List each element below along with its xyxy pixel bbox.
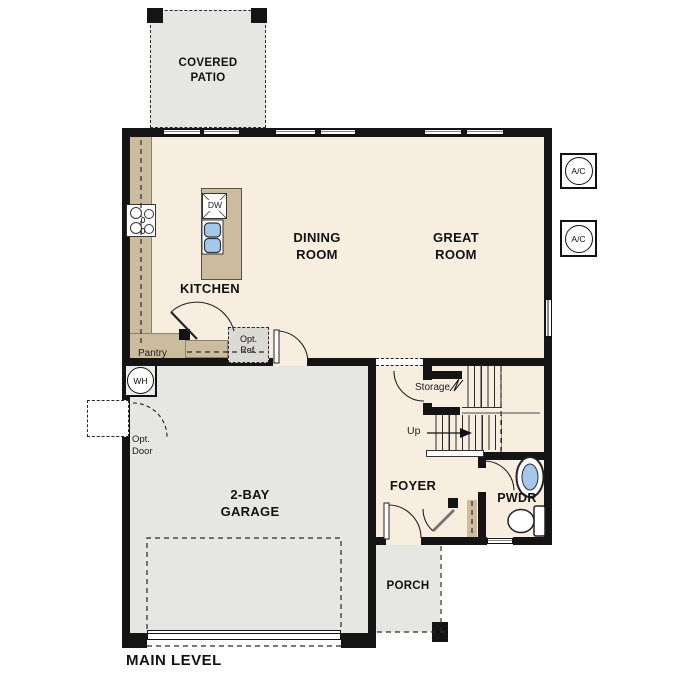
room-label-powder-room: PWDR <box>492 490 542 506</box>
storage-leader-zigzag <box>450 379 463 391</box>
annotation-pantry: Pantry <box>138 347 167 360</box>
room-label-kitchen: KITCHEN <box>173 281 247 298</box>
room-label-dining-room: DINING ROOM <box>277 230 357 264</box>
room-label-covered-patio: COVERED PATIO <box>160 56 256 86</box>
annotation-optional-door: Opt. Door <box>132 434 172 458</box>
kitchen-sink <box>202 220 223 254</box>
front-door-leaf <box>384 503 389 539</box>
room-label-garage: 2-BAY GARAGE <box>204 487 296 521</box>
pantry-door-arc <box>171 302 234 331</box>
garage-entry-door-arc <box>279 331 308 362</box>
cooktop-burners <box>131 208 154 234</box>
annotation-up: Up <box>407 425 420 439</box>
up-arrow-head <box>460 428 472 438</box>
toilet <box>508 506 545 536</box>
garage-clearance-dash <box>147 538 341 629</box>
room-label-porch: PORCH <box>382 579 434 594</box>
plan-title: MAIN LEVEL <box>126 651 222 671</box>
floor-plan-main-level: Opt. Ref. WH A/C A/C <box>0 0 687 687</box>
linework-overlay <box>0 0 687 687</box>
powder-door-arc <box>485 461 514 490</box>
optional-door-arc <box>133 403 167 437</box>
room-label-foyer: FOYER <box>388 478 438 495</box>
closet-door-leaf <box>433 510 454 531</box>
garage-entry-door-leaf <box>274 330 279 363</box>
dishwasher-label: DW <box>204 200 226 211</box>
optional-door-label: Door <box>132 446 153 457</box>
closet-door-arc <box>423 509 433 531</box>
pantry-door-leaf <box>171 312 197 339</box>
optional-door-label: Opt. <box>132 434 150 445</box>
front-door-arc <box>389 505 421 538</box>
room-label-great-room: GREAT ROOM <box>416 230 496 264</box>
door-swings <box>133 302 514 539</box>
annotation-storage: Storage <box>415 381 450 394</box>
